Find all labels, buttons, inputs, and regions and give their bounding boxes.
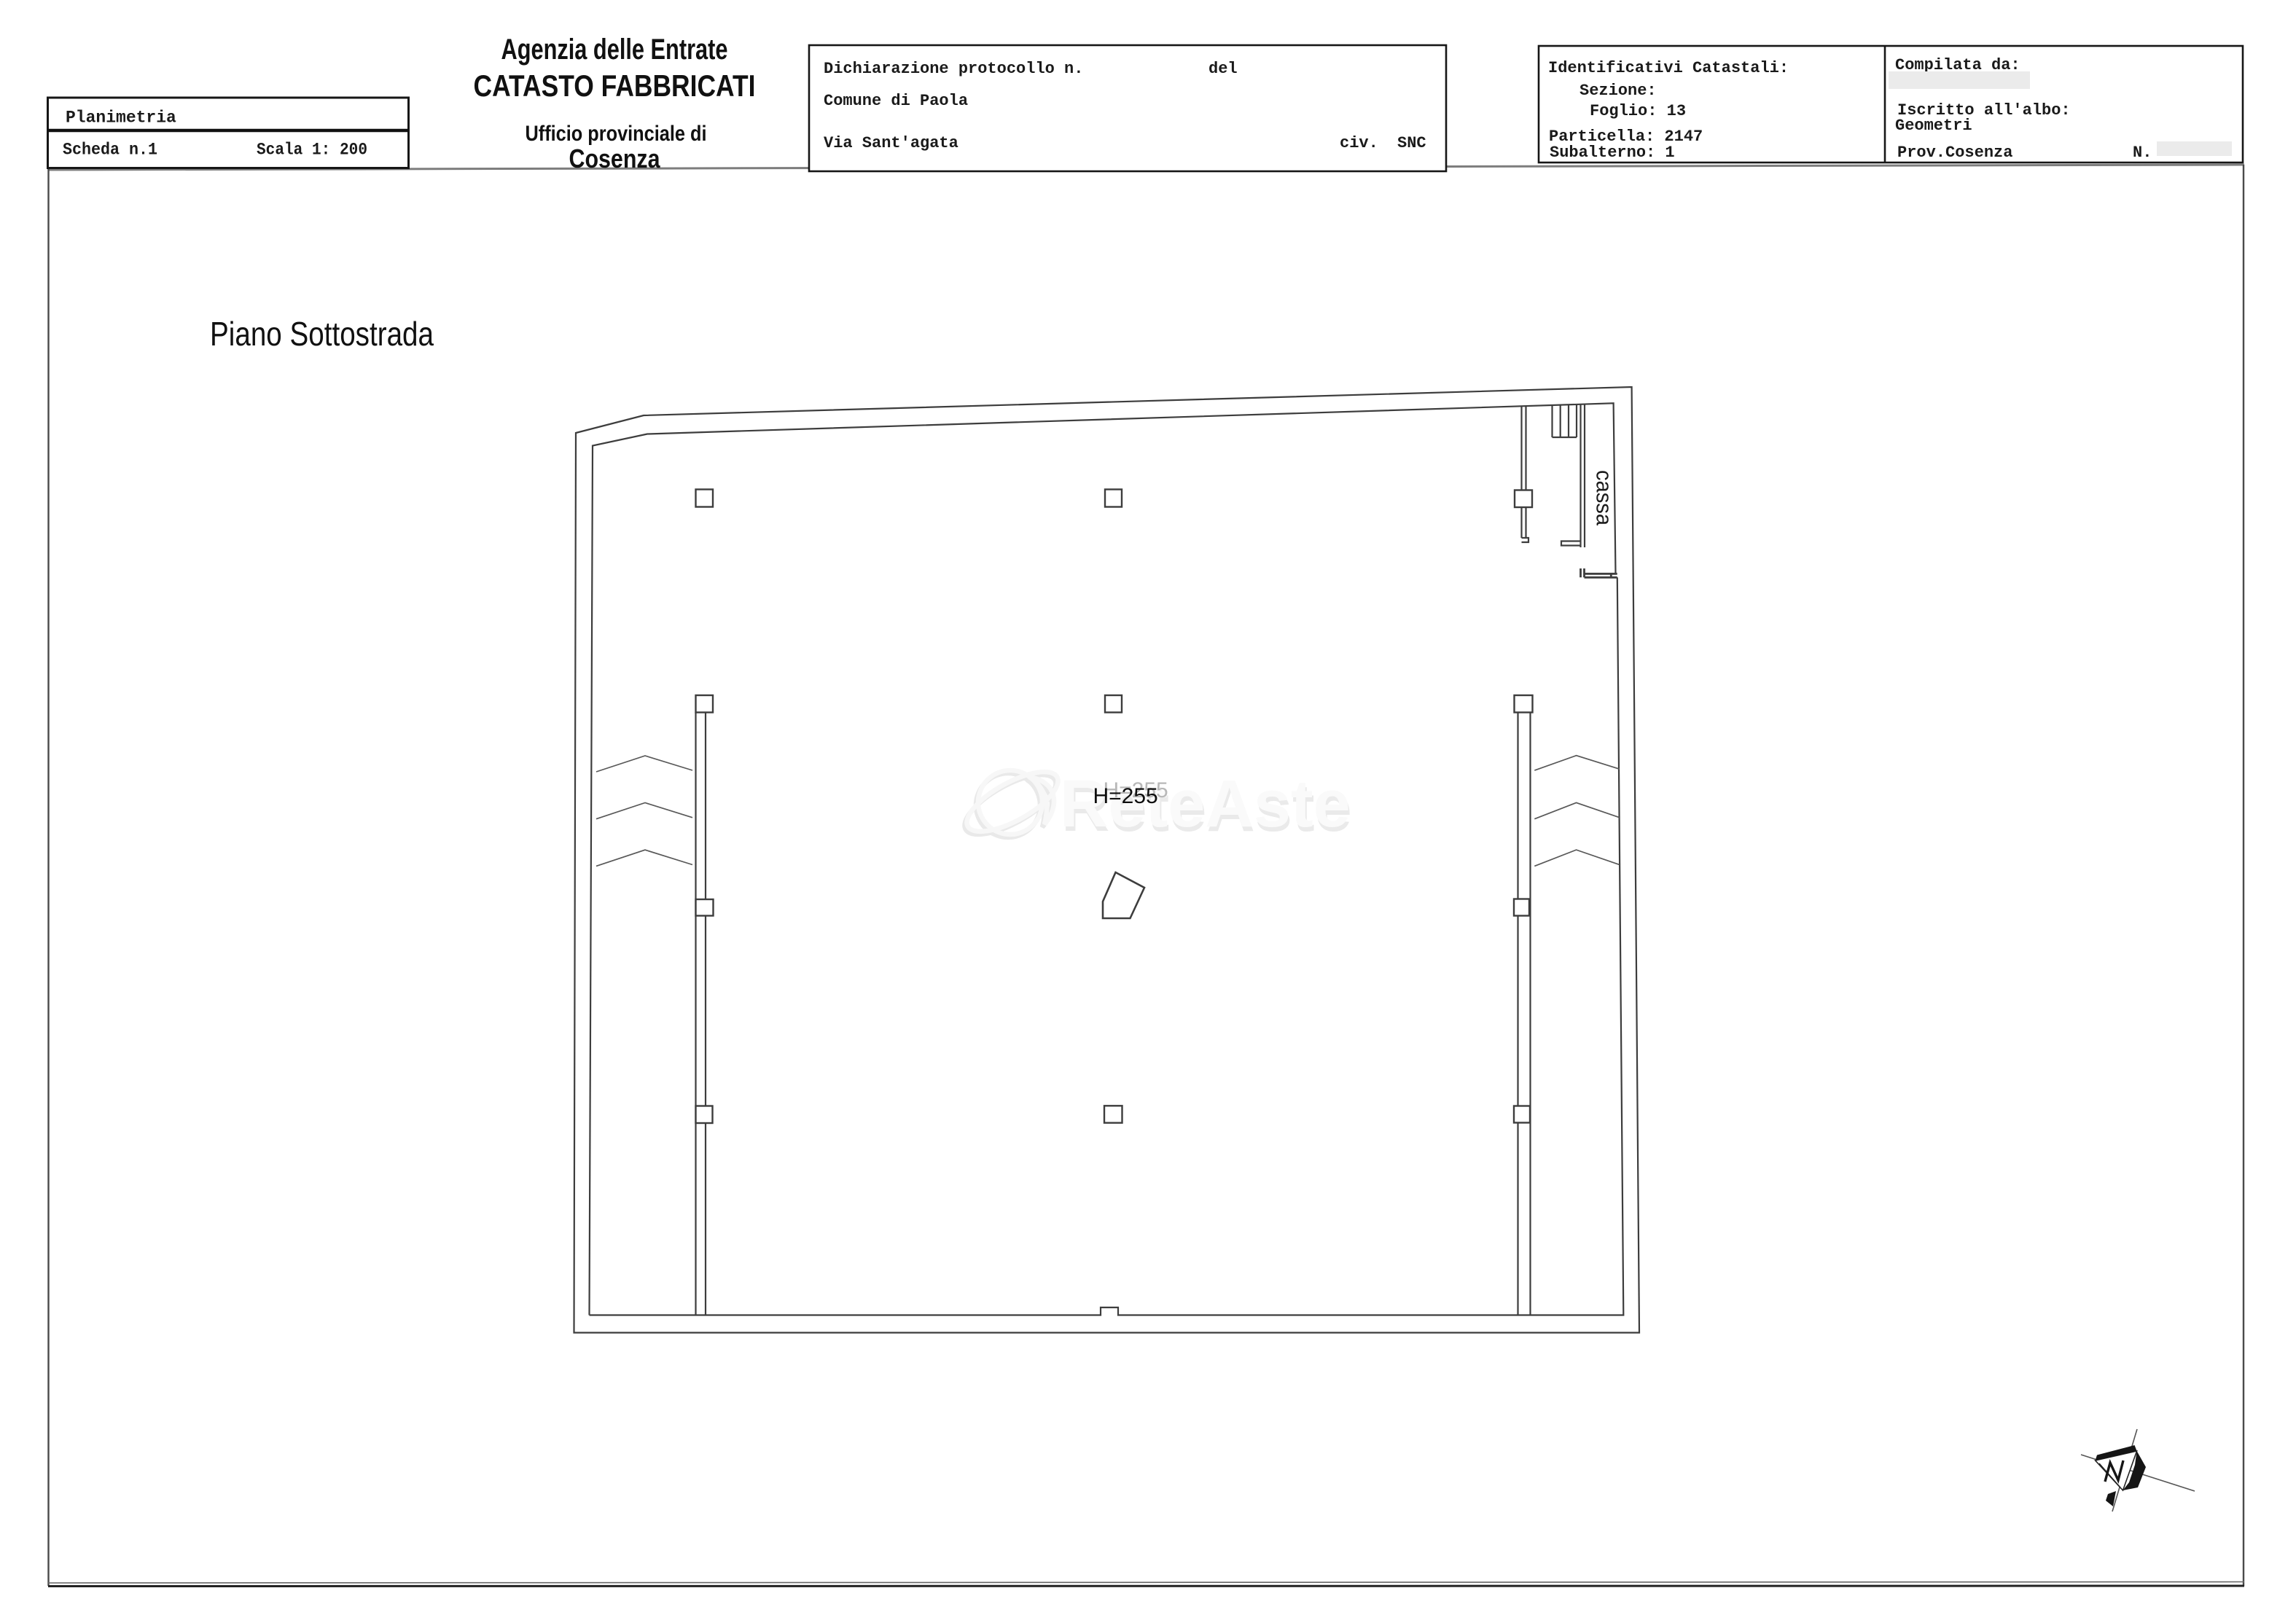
svg-text:Ufficio provinciale di: Ufficio provinciale di [526,122,707,146]
svg-text:Prov.Cosenza: Prov.Cosenza [1897,144,2012,162]
svg-text:SNC: SNC [1397,134,1426,152]
svg-text:Foglio: 13: Foglio: 13 [1590,102,1686,120]
svg-text:Comune di Paola: Comune di Paola [824,92,968,110]
svg-text:Subalterno: 1: Subalterno: 1 [1550,144,1675,162]
svg-text:Sezione:: Sezione: [1580,82,1657,100]
svg-text:Scala 1: 200: Scala 1: 200 [257,141,367,160]
svg-text:H=255: H=255 [1093,784,1158,808]
svg-text:Geometri: Geometri [1895,117,1972,135]
svg-text:cassa: cassa [1592,470,1617,526]
svg-text:CATASTO FABBRICATI: CATASTO FABBRICATI [474,69,756,103]
svg-text:Planimetria: Planimetria [66,109,176,128]
svg-text:N.: N. [2133,144,2152,162]
svg-text:Agenzia delle Entrate: Agenzia delle Entrate [501,34,728,66]
svg-text:Via Sant'agata: Via Sant'agata [824,134,958,152]
svg-text:Scheda n.1: Scheda n.1 [63,141,157,160]
svg-text:del: del [1208,60,1238,78]
svg-text:Piano Sottostrada: Piano Sottostrada [210,315,434,353]
svg-text:civ.: civ. [1340,134,1378,152]
svg-text:Identificativi Catastali:: Identificativi Catastali: [1548,59,1789,77]
svg-text:Dichiarazione protocollo n.: Dichiarazione protocollo n. [824,60,1083,78]
svg-text:Cosenza: Cosenza [569,144,661,173]
